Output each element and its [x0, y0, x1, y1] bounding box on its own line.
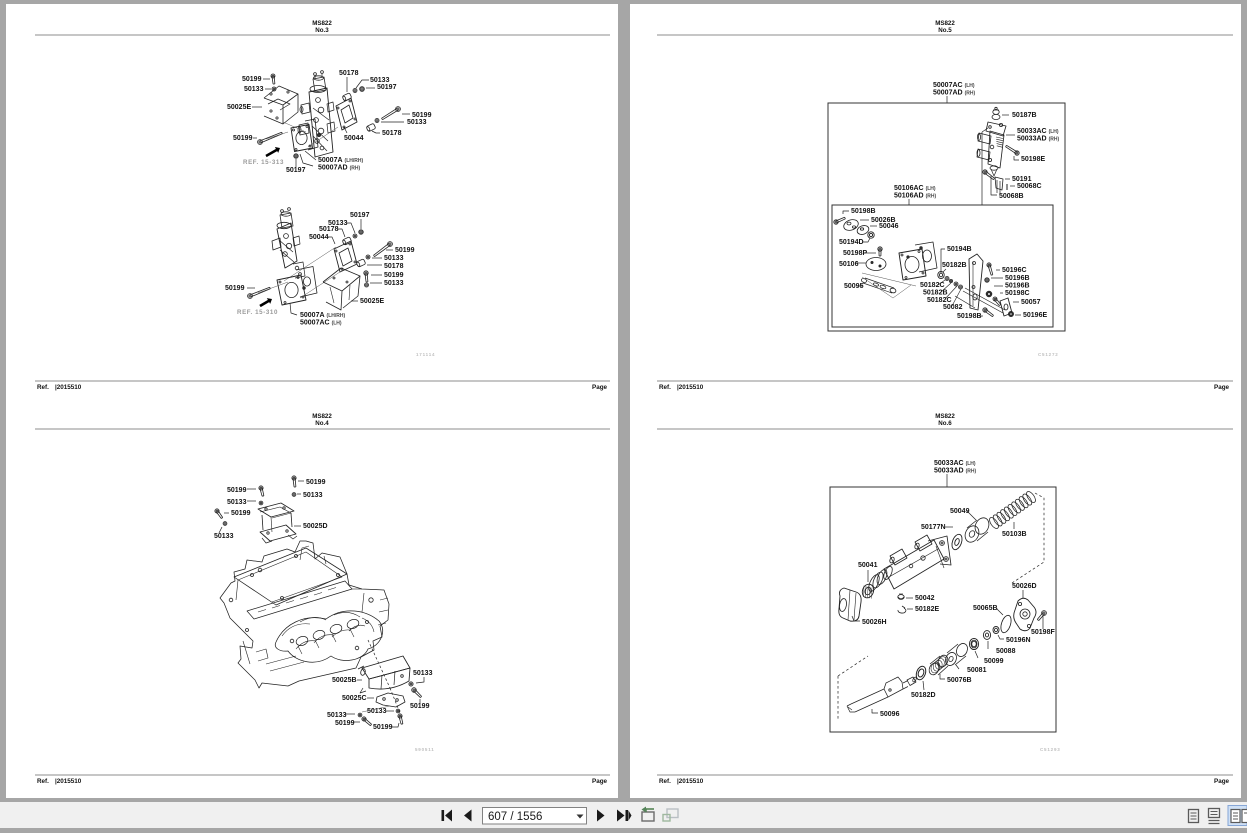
svg-text:50196E: 50196E [1023, 312, 1047, 319]
svg-text:50199: 50199 [233, 135, 253, 142]
svg-text:50103B: 50103B [1002, 531, 1027, 538]
svg-text:Ref.: Ref. [37, 778, 49, 785]
svg-text:50133: 50133 [214, 533, 234, 540]
svg-text:Page: Page [1214, 778, 1230, 785]
svg-text:|2015510: |2015510 [55, 384, 82, 391]
svg-text:No.6: No.6 [938, 420, 952, 427]
svg-text:50199: 50199 [395, 247, 415, 254]
svg-text:50199: 50199 [225, 285, 245, 292]
svg-text:50133: 50133 [303, 492, 323, 499]
svg-text:50033AC(LH): 50033AC(LH) [1017, 128, 1059, 135]
svg-text:C51293: C51293 [1040, 747, 1061, 752]
svg-text:50197: 50197 [350, 212, 370, 219]
svg-text:50133: 50133 [370, 77, 390, 84]
svg-text:50191: 50191 [1012, 176, 1032, 183]
svg-text:50177N: 50177N [921, 524, 946, 531]
svg-text:Ref.: Ref. [659, 384, 671, 391]
svg-text:50194B: 50194B [947, 246, 972, 253]
svg-text:50182B: 50182B [942, 262, 967, 269]
svg-text:50182B: 50182B [923, 290, 948, 297]
svg-text:50133: 50133 [384, 280, 404, 287]
svg-text:MS822: MS822 [935, 20, 955, 27]
svg-text:50199: 50199 [227, 487, 247, 494]
svg-text:50178: 50178 [319, 226, 339, 233]
svg-text:50199: 50199 [242, 76, 262, 83]
svg-text:50199: 50199 [384, 272, 404, 279]
svg-text:50182C: 50182C [927, 297, 952, 304]
svg-text:50106: 50106 [839, 261, 859, 268]
svg-text:50007AC(LH): 50007AC(LH) [933, 82, 975, 89]
svg-text:50133: 50133 [413, 670, 433, 677]
svg-text:50068C: 50068C [1017, 183, 1042, 190]
svg-text:50199: 50199 [373, 724, 393, 731]
svg-text:REF. 15-310: REF. 15-310 [237, 309, 278, 316]
svg-text:50007A(LH/RH): 50007A(LH/RH) [300, 312, 345, 319]
svg-text:50044: 50044 [309, 234, 329, 241]
svg-text:607 / 1556: 607 / 1556 [488, 811, 542, 823]
svg-text:50096: 50096 [880, 711, 900, 718]
svg-text:50198B: 50198B [851, 208, 876, 215]
svg-text:Page: Page [1214, 384, 1230, 391]
svg-text:50198B: 50198B [957, 313, 982, 320]
svg-text:50033AC(LH): 50033AC(LH) [934, 460, 976, 467]
svg-text:50099: 50099 [984, 658, 1004, 665]
svg-text:50133: 50133 [384, 255, 404, 262]
svg-text:Page: Page [592, 384, 608, 391]
svg-text:50025C: 50025C [342, 695, 367, 702]
svg-text:50033AD(RH): 50033AD(RH) [1017, 136, 1059, 143]
svg-text:50025D: 50025D [303, 523, 328, 530]
svg-text:50026D: 50026D [1012, 583, 1037, 590]
svg-text:50025B: 50025B [332, 677, 357, 684]
svg-text:50178: 50178 [382, 130, 402, 137]
svg-text:50197: 50197 [286, 167, 306, 174]
svg-text:50007AC(LH): 50007AC(LH) [300, 320, 342, 327]
svg-text:REF. 15-313: REF. 15-313 [243, 159, 284, 166]
svg-text:50033AD(RH): 50033AD(RH) [934, 468, 976, 475]
svg-text:|2015510: |2015510 [677, 778, 704, 785]
svg-text:MS822: MS822 [935, 413, 955, 420]
svg-text:50133: 50133 [244, 86, 264, 93]
svg-text:50007AD(RH): 50007AD(RH) [318, 165, 360, 172]
svg-text:50081: 50081 [967, 667, 987, 674]
svg-text:Ref.: Ref. [659, 778, 671, 785]
svg-text:50057: 50057 [1021, 299, 1041, 306]
svg-text:No.3: No.3 [315, 27, 329, 34]
svg-text:50196N: 50196N [1006, 637, 1031, 644]
svg-text:50199: 50199 [231, 510, 251, 517]
svg-text:171114: 171114 [416, 352, 435, 357]
svg-text:50133: 50133 [407, 119, 427, 126]
svg-text:C51272: C51272 [1038, 352, 1059, 357]
svg-text:50133: 50133 [227, 499, 247, 506]
svg-text:50198E: 50198E [1021, 156, 1045, 163]
svg-text:50197: 50197 [377, 84, 397, 91]
svg-text:50076B: 50076B [947, 677, 972, 684]
svg-text:50026H: 50026H [862, 619, 887, 626]
svg-text:50088: 50088 [996, 648, 1016, 655]
svg-text:50044: 50044 [344, 135, 364, 142]
svg-text:50196C: 50196C [1002, 267, 1027, 274]
svg-text:|2015510: |2015510 [55, 778, 82, 785]
svg-text:|2015510: |2015510 [677, 384, 704, 391]
svg-text:Ref.: Ref. [37, 384, 49, 391]
svg-text:50007A(LH/RH): 50007A(LH/RH) [318, 157, 363, 164]
svg-text:No.5: No.5 [938, 27, 952, 34]
svg-text:50106AD(RH): 50106AD(RH) [894, 193, 936, 200]
svg-text:50199: 50199 [306, 479, 326, 486]
svg-text:50041: 50041 [858, 562, 878, 569]
svg-text:50198P: 50198P [843, 250, 867, 257]
svg-text:50199: 50199 [410, 703, 430, 710]
svg-text:50198F: 50198F [1031, 629, 1055, 636]
svg-text:50065B: 50065B [973, 605, 998, 612]
svg-text:50199: 50199 [412, 112, 432, 119]
svg-text:50046: 50046 [879, 223, 899, 230]
svg-text:50133: 50133 [327, 712, 347, 719]
svg-text:50042: 50042 [915, 595, 935, 602]
svg-text:50194D: 50194D [839, 239, 864, 246]
svg-text:50068B: 50068B [999, 193, 1024, 200]
svg-text:50199: 50199 [335, 720, 355, 727]
svg-text:50095: 50095 [844, 283, 864, 290]
svg-text:50198C: 50198C [1005, 290, 1030, 297]
svg-text:50025E: 50025E [227, 104, 251, 111]
svg-text:50025E: 50025E [360, 298, 384, 305]
svg-text:590511: 590511 [415, 747, 435, 752]
svg-text:50178: 50178 [384, 263, 404, 270]
svg-text:MS822: MS822 [312, 413, 332, 420]
svg-text:Page: Page [592, 778, 608, 785]
svg-text:50182E: 50182E [915, 606, 939, 613]
svg-text:50196B: 50196B [1005, 275, 1030, 282]
svg-text:MS822: MS822 [312, 20, 332, 27]
svg-text:50187B: 50187B [1012, 112, 1037, 119]
svg-text:No.4: No.4 [315, 420, 329, 427]
svg-text:50178: 50178 [339, 70, 359, 77]
svg-text:50182D: 50182D [911, 692, 936, 699]
svg-text:50049: 50049 [950, 508, 970, 515]
svg-text:50007AD(RH): 50007AD(RH) [933, 90, 975, 97]
svg-text:50196B: 50196B [1005, 283, 1030, 290]
svg-text:50106AC(LH): 50106AC(LH) [894, 185, 936, 192]
